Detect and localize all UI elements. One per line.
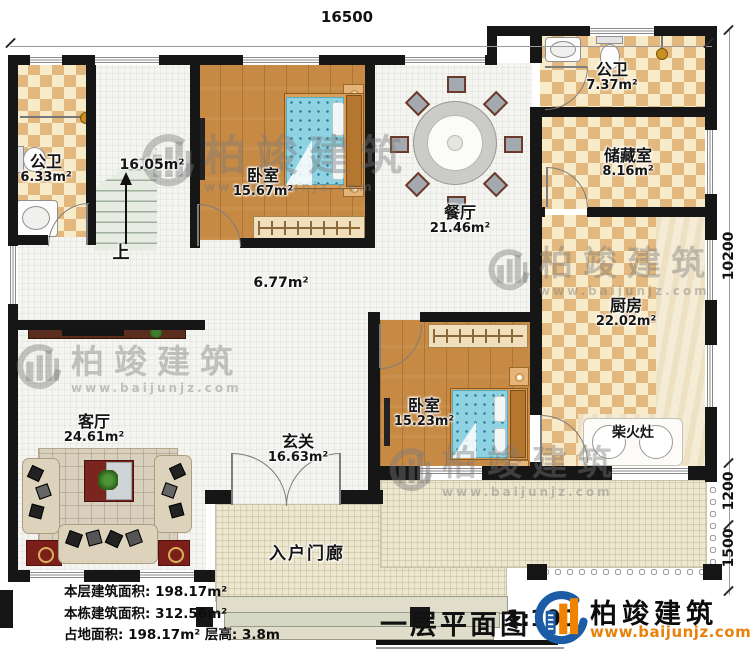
shower-head-icon (656, 48, 668, 60)
wall (8, 320, 205, 330)
window (405, 55, 485, 65)
wall (340, 490, 383, 504)
window (243, 55, 319, 65)
wall (530, 207, 545, 217)
door-leaf (546, 167, 548, 207)
room-label-bath2: 公卫7.37m² (586, 62, 637, 92)
brand-url: www.baijunjz.com (590, 623, 750, 641)
porch-pillar (703, 564, 722, 580)
wall (205, 490, 232, 504)
dimension-right-lower: 1500 (721, 518, 737, 578)
wall (240, 238, 375, 248)
title-underline-thin (376, 647, 564, 649)
room-label-dining: 餐厅21.46m² (430, 205, 490, 235)
stats-line-1: 本层建筑面积: 198.17m² (64, 582, 280, 604)
window (420, 466, 482, 480)
wall (8, 235, 48, 245)
window (95, 55, 159, 65)
pillow (332, 146, 344, 180)
porch-floor-right (380, 480, 707, 568)
door-leaf (379, 324, 381, 368)
wall (530, 26, 542, 63)
room-label-living: 客厅24.61m² (64, 414, 124, 444)
dining-chair (504, 136, 523, 153)
dining-table-center (447, 135, 463, 151)
room-label-stove: 柴火灶 (612, 426, 654, 441)
window (30, 570, 84, 582)
wall (530, 107, 542, 415)
sofa (58, 524, 158, 564)
window (590, 26, 654, 36)
room-label-storage: 储藏室8.16m² (602, 148, 653, 178)
sofa (22, 458, 60, 534)
bed-headboard (510, 390, 526, 458)
area-stats: 本层建筑面积: 198.17m² 本栋建筑面积: 312.56m² 占地面积: … (64, 582, 280, 647)
door-leaf (231, 453, 233, 505)
wardrobe (428, 324, 528, 348)
wardrobe (253, 216, 365, 240)
sofa (154, 455, 192, 533)
title-underline (376, 640, 558, 645)
wall (368, 312, 380, 322)
dimension-right-upper: 10200 (721, 226, 737, 286)
tv (62, 329, 124, 336)
room-label-bedroom1: 卧室15.67m² (233, 168, 293, 198)
porch-railing (540, 566, 704, 578)
dimension-line-top (10, 46, 712, 47)
red-mat (158, 540, 190, 566)
wall (365, 55, 375, 248)
dining-chair (447, 76, 466, 93)
stairs-up-label: 上 (113, 245, 132, 263)
sink-icon (550, 41, 576, 58)
window (140, 570, 194, 582)
room-label-foyer: 玄关16.63m² (268, 434, 328, 464)
toilet-tank (596, 36, 623, 44)
wall (8, 55, 18, 582)
wall (420, 312, 542, 322)
room-label-hallway: 6.77m² (253, 276, 308, 291)
window (705, 240, 717, 300)
door-leaf (197, 204, 199, 246)
red-mat (26, 540, 62, 566)
stairs-arrow-head (120, 172, 132, 185)
stats-line-2: 本栋建筑面积: 312.56m² (64, 604, 280, 626)
stats-line-3: 占地面积: 198.17m² 层高: 3.8m (64, 625, 280, 647)
room-label-stairs: 16.05m² (119, 158, 184, 173)
wall (530, 462, 542, 470)
tv (384, 398, 390, 446)
wall (530, 107, 717, 117)
bed-headboard (346, 95, 362, 187)
wall (88, 235, 96, 245)
door-leaf (86, 203, 88, 245)
shower-rod (20, 116, 86, 118)
room-label-bath1: 公卫6.33m² (20, 154, 71, 184)
brand-logo-icon (534, 589, 588, 647)
wall-stub (0, 590, 13, 628)
dining-chair (390, 136, 409, 153)
window (612, 466, 688, 480)
plant (98, 470, 118, 490)
room-label-porch: 入户门廊 (269, 546, 345, 564)
porch-pillar (527, 564, 547, 580)
window (705, 130, 717, 194)
porch-railing (707, 484, 719, 566)
window (8, 246, 18, 304)
sink-icon (22, 206, 50, 230)
stairs-arrow (125, 184, 127, 244)
door-leaf (540, 415, 542, 462)
pillow (332, 102, 344, 136)
room-label-kitchen: 厨房22.02m² (596, 298, 656, 328)
pillow (494, 428, 506, 454)
window (705, 345, 717, 407)
room-label-bedroom2: 卧室15.23m² (394, 398, 454, 428)
wall (587, 207, 717, 217)
pillow (494, 396, 506, 422)
door-leaf (545, 66, 587, 68)
dimension-top-value: 16500 (312, 8, 382, 26)
dimension-right-mid: 1200 (721, 461, 737, 521)
nightstand (509, 367, 529, 386)
window (30, 55, 62, 65)
floor-plan: 柏竣建筑 www.baijunjz.com 柏竣建筑 www.baijunjz.… (0, 0, 750, 651)
door-leaf (339, 453, 341, 505)
